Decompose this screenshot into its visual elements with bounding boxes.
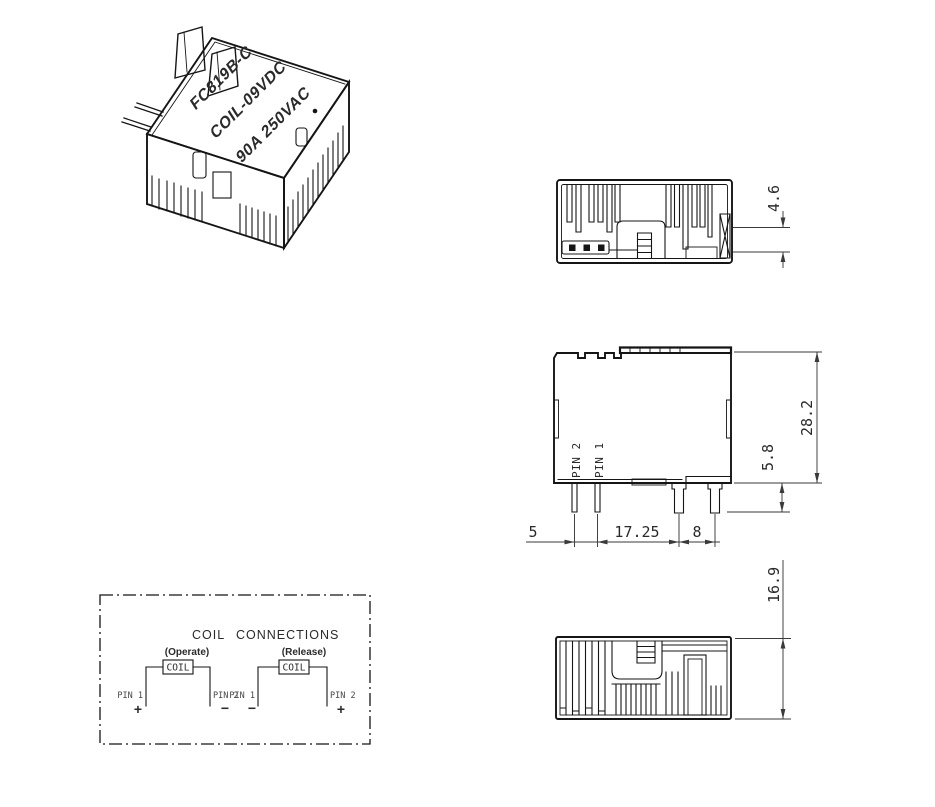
contact-pad (598, 245, 605, 252)
left-rib-lines (566, 641, 605, 715)
dim-16-9-label: 16.9 (765, 567, 783, 603)
coil-pin-1 (595, 483, 600, 512)
terminal-well-outer (684, 655, 706, 715)
dim-28-2-label: 28.2 (798, 400, 816, 436)
ladder-feature (637, 641, 655, 663)
technical-drawing-canvas: FC819B-C COIL-09VDC 90A 250VAC 4.6 (0, 0, 935, 807)
operate-pin2-polarity: − (221, 700, 229, 716)
dimension-4-6: 4.6 (733, 185, 790, 268)
isometric-view: FC819B-C COIL-09VDC 90A 250VAC (122, 27, 349, 248)
load-terminal-a (672, 483, 686, 513)
coil-connections-title-word2: CONNECTIONS (236, 628, 339, 642)
top-right-lines (662, 645, 727, 651)
vent-slots-left (567, 185, 620, 232)
release-circuit: (Release) COIL PIN 1 − PIN 2 + (229, 647, 355, 717)
bottom-right-step (686, 477, 731, 484)
dim-4-6-label: 4.6 (765, 185, 783, 212)
comb-lines (616, 684, 656, 714)
ladder-feature (638, 233, 652, 259)
coil-connections-panel: COIL CONNECTIONS (Operate) COIL PIN 1 + … (100, 595, 370, 744)
pin2-label: PIN 2 (570, 442, 583, 478)
dim-17-25-label: 17.25 (614, 523, 659, 541)
dimension-16-9: 16.9 (735, 560, 791, 719)
coil-pin-2 (572, 483, 577, 512)
bottom-view: 16.9 (556, 560, 791, 719)
operate-pin1-label: PIN 1 (117, 691, 143, 701)
operate-caption: (Operate) (165, 647, 209, 658)
terminal-well-inner (688, 659, 702, 715)
phantom-border (100, 595, 370, 744)
coil-connections-title-word1: COIL (192, 628, 225, 642)
vent-slots-right (666, 185, 712, 249)
dim-8-label: 8 (692, 523, 701, 541)
dim-5-label: 5 (528, 523, 537, 541)
side-edge-slots (554, 400, 731, 438)
bottom-view-outline (556, 637, 731, 719)
dimension-28-2: 28.2 (734, 352, 822, 483)
right-rib-lines (711, 686, 721, 714)
product-markings: FC819B-C COIL-09VDC 90A 250VAC (188, 41, 318, 167)
pin-pitch-dimensions: 5 17.25 8 (526, 514, 720, 547)
dimension-5-8: 5.8 (727, 444, 790, 512)
coil-box-label: COIL (283, 663, 306, 674)
operate-pin1-polarity: + (134, 701, 142, 717)
coil-box-label: COIL (167, 663, 190, 674)
release-pin2-polarity: + (337, 701, 345, 717)
coil-wire-pins (122, 103, 163, 131)
right-recess (686, 247, 717, 259)
terminal-x-slot (720, 214, 730, 258)
step-block (213, 172, 231, 198)
top-view: 4.6 (557, 180, 790, 268)
operate-circuit: (Operate) COIL PIN 1 + PIN 2 − (117, 647, 238, 717)
release-caption: (Release) (282, 647, 326, 658)
marking-dot (313, 109, 318, 114)
mid-rib-lines (666, 672, 678, 714)
dim-5-8-label: 5.8 (759, 444, 777, 471)
load-terminal-b (708, 483, 722, 513)
latch-slot (193, 152, 206, 178)
release-pin1-polarity: − (248, 700, 256, 716)
contact-pad (569, 245, 576, 252)
pin1-label: PIN 1 (593, 442, 606, 478)
contact-pad (584, 245, 591, 252)
side-slot (296, 128, 307, 146)
side-view: PIN 2 PIN 1 28.2 5.8 5 17.25 8 (526, 348, 822, 548)
relay-datasheet-drawing: FC819B-C COIL-09VDC 90A 250VAC 4.6 (0, 0, 935, 807)
release-pin2-label: PIN 2 (330, 691, 356, 701)
